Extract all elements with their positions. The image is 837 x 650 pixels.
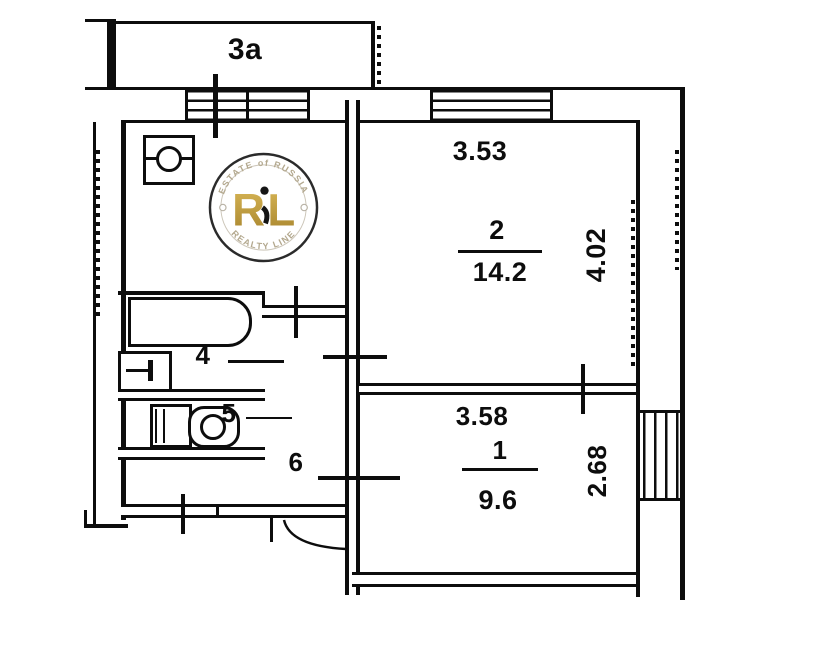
room1-door-line [318, 476, 400, 480]
entrance-door-arc [276, 514, 350, 554]
room2-depth-dim: 4.02 [567, 223, 627, 287]
balcony-right-hatch [377, 26, 381, 86]
floor-plan-canvas: 3а 3.53 2 14.2 [0, 0, 837, 650]
toilet-tank-icon [150, 404, 192, 448]
room2-area: 14.2 [445, 258, 555, 288]
hallway-number: 6 [278, 448, 314, 477]
room2-number: 2 [467, 216, 527, 246]
bathroom-dash [228, 360, 284, 363]
hall-divider-tick [216, 504, 219, 518]
logo-left-dot [220, 204, 226, 210]
room2-door-line [323, 355, 387, 359]
right-outer-hatch [675, 150, 679, 270]
balcony-door-line [213, 74, 218, 138]
kitchen-bottom-wall [262, 305, 345, 318]
entrance-door-stub [270, 517, 273, 542]
kitchen-window-divider [246, 90, 249, 122]
toilet-dash [246, 417, 292, 419]
logo-right-dot [301, 204, 307, 210]
room2-window [430, 90, 553, 122]
bathtub-icon [128, 297, 252, 347]
wash-sink-t-horizontal [126, 369, 150, 372]
hall-door-tick [181, 494, 185, 534]
toilet-tank-hatch [155, 409, 171, 443]
realty-logo: ESTATE of RUSSIA REALTY LINE R L [206, 150, 321, 265]
balcony-left-wall [107, 19, 116, 90]
room1-depth-dim: 2.68 [567, 440, 627, 502]
wall-right-outer [680, 88, 685, 600]
wall-top-outer [85, 87, 685, 90]
wall-bottom-left [84, 524, 128, 528]
bathroom-number: 4 [186, 341, 220, 370]
room1-width-dim: 3.58 [432, 402, 532, 431]
wall-inner-left [121, 122, 126, 520]
wall-main-top [121, 120, 640, 123]
room2-width-dim: 3.53 [430, 137, 530, 167]
room1-fraction-line [462, 468, 538, 471]
toilet-bottom-wall [118, 447, 265, 460]
right-window-cap-bottom [640, 498, 683, 501]
right-side-window [643, 412, 680, 500]
logo-monogram-r: R [232, 184, 265, 235]
room2-fraction-line [458, 250, 542, 253]
room1-bottom-window [352, 572, 636, 587]
rooms-right-hatch [631, 200, 635, 370]
rooms-divider-door-tick [581, 364, 585, 414]
room1-number: 1 [470, 436, 530, 465]
kitchen-sink-drain [156, 146, 182, 172]
logo-monogram-l: L [267, 184, 295, 235]
wall-bottom-left-stub [84, 510, 87, 528]
left-outer-hatch [96, 150, 100, 320]
wall-rooms-divider [359, 383, 636, 395]
bathroom-top-wall [118, 291, 265, 295]
right-window-cap-top [640, 410, 683, 413]
balcony-label: 3а [210, 33, 280, 66]
wall-rooms-right [636, 122, 640, 597]
wash-sink-t-vertical [148, 360, 153, 381]
toilet-number: 5 [213, 399, 245, 428]
logo-center-dot [260, 186, 268, 194]
room1-area: 9.6 [448, 486, 548, 516]
kitchen-door-tick [294, 286, 298, 338]
